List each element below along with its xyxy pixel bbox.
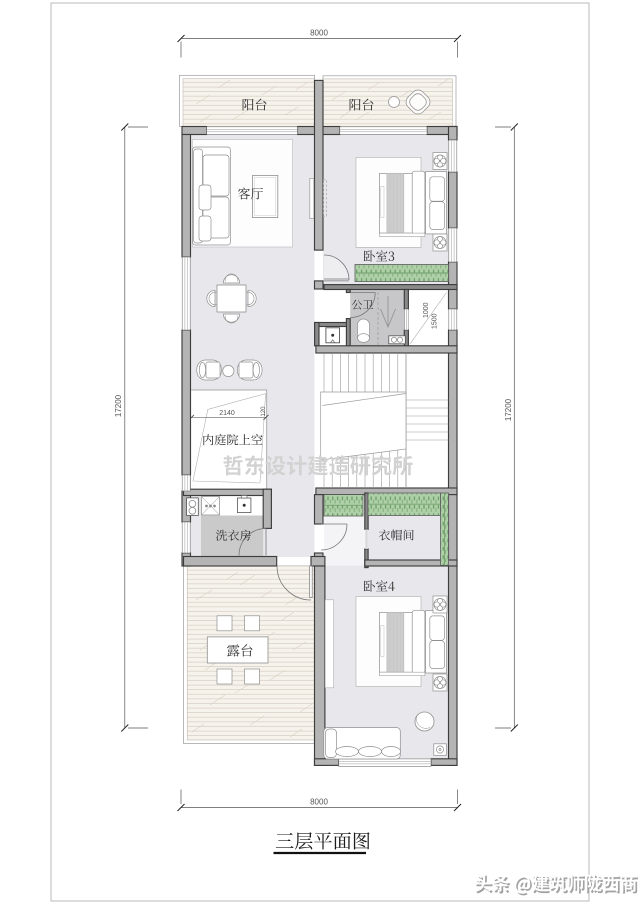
svg-text:8000: 8000: [310, 29, 328, 38]
svg-text:1000: 1000: [423, 302, 430, 318]
svg-text:120: 120: [261, 406, 267, 417]
svg-text:1500: 1500: [432, 313, 439, 329]
svg-text:8000: 8000: [310, 798, 328, 807]
svg-text:17200: 17200: [114, 394, 123, 417]
svg-text:17200: 17200: [504, 398, 513, 421]
svg-text:2140: 2140: [219, 410, 235, 417]
